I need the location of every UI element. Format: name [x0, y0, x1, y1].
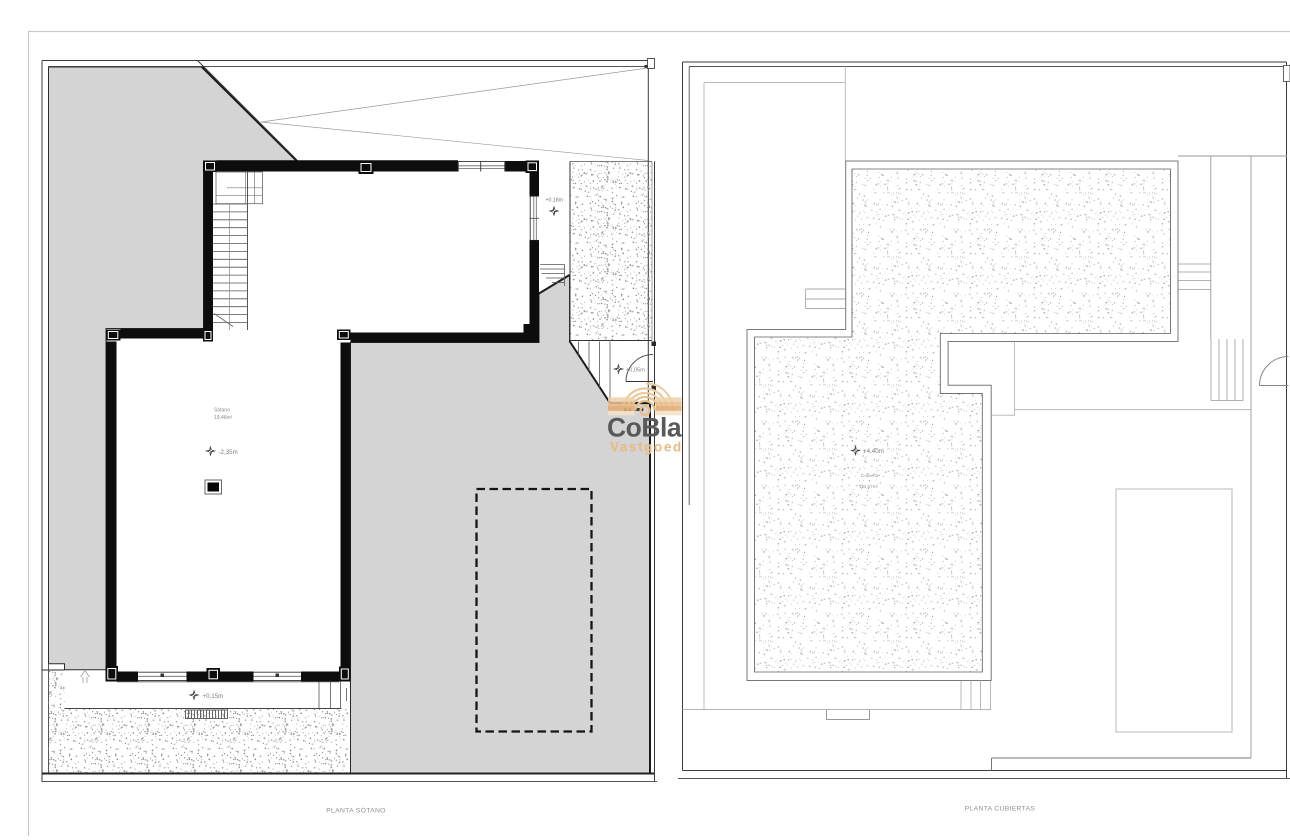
- svg-text:PLANTA SÓTANO: PLANTA SÓTANO: [326, 806, 386, 815]
- svg-text:114,57m²: 114,57m²: [859, 484, 879, 489]
- svg-text:Cubierta: Cubierta: [861, 473, 879, 478]
- svg-text:+4,40m: +4,40m: [863, 448, 884, 455]
- svg-text:+0,15m: +0,15m: [203, 693, 224, 700]
- svg-text:-2,35m: -2,35m: [219, 449, 238, 456]
- svg-text:CoBla: CoBla: [607, 413, 682, 443]
- svg-text:19,46m²: 19,46m²: [214, 415, 233, 421]
- svg-text:+0,05m: +0,05m: [626, 368, 645, 374]
- svg-text:Sótano: Sótano: [214, 408, 230, 414]
- svg-text:PLANTA CUBIERTAS: PLANTA CUBIERTAS: [965, 806, 1036, 813]
- svg-text:+0,18m: +0,18m: [546, 197, 563, 203]
- svg-text:Vastgoed: Vastgoed: [610, 440, 683, 455]
